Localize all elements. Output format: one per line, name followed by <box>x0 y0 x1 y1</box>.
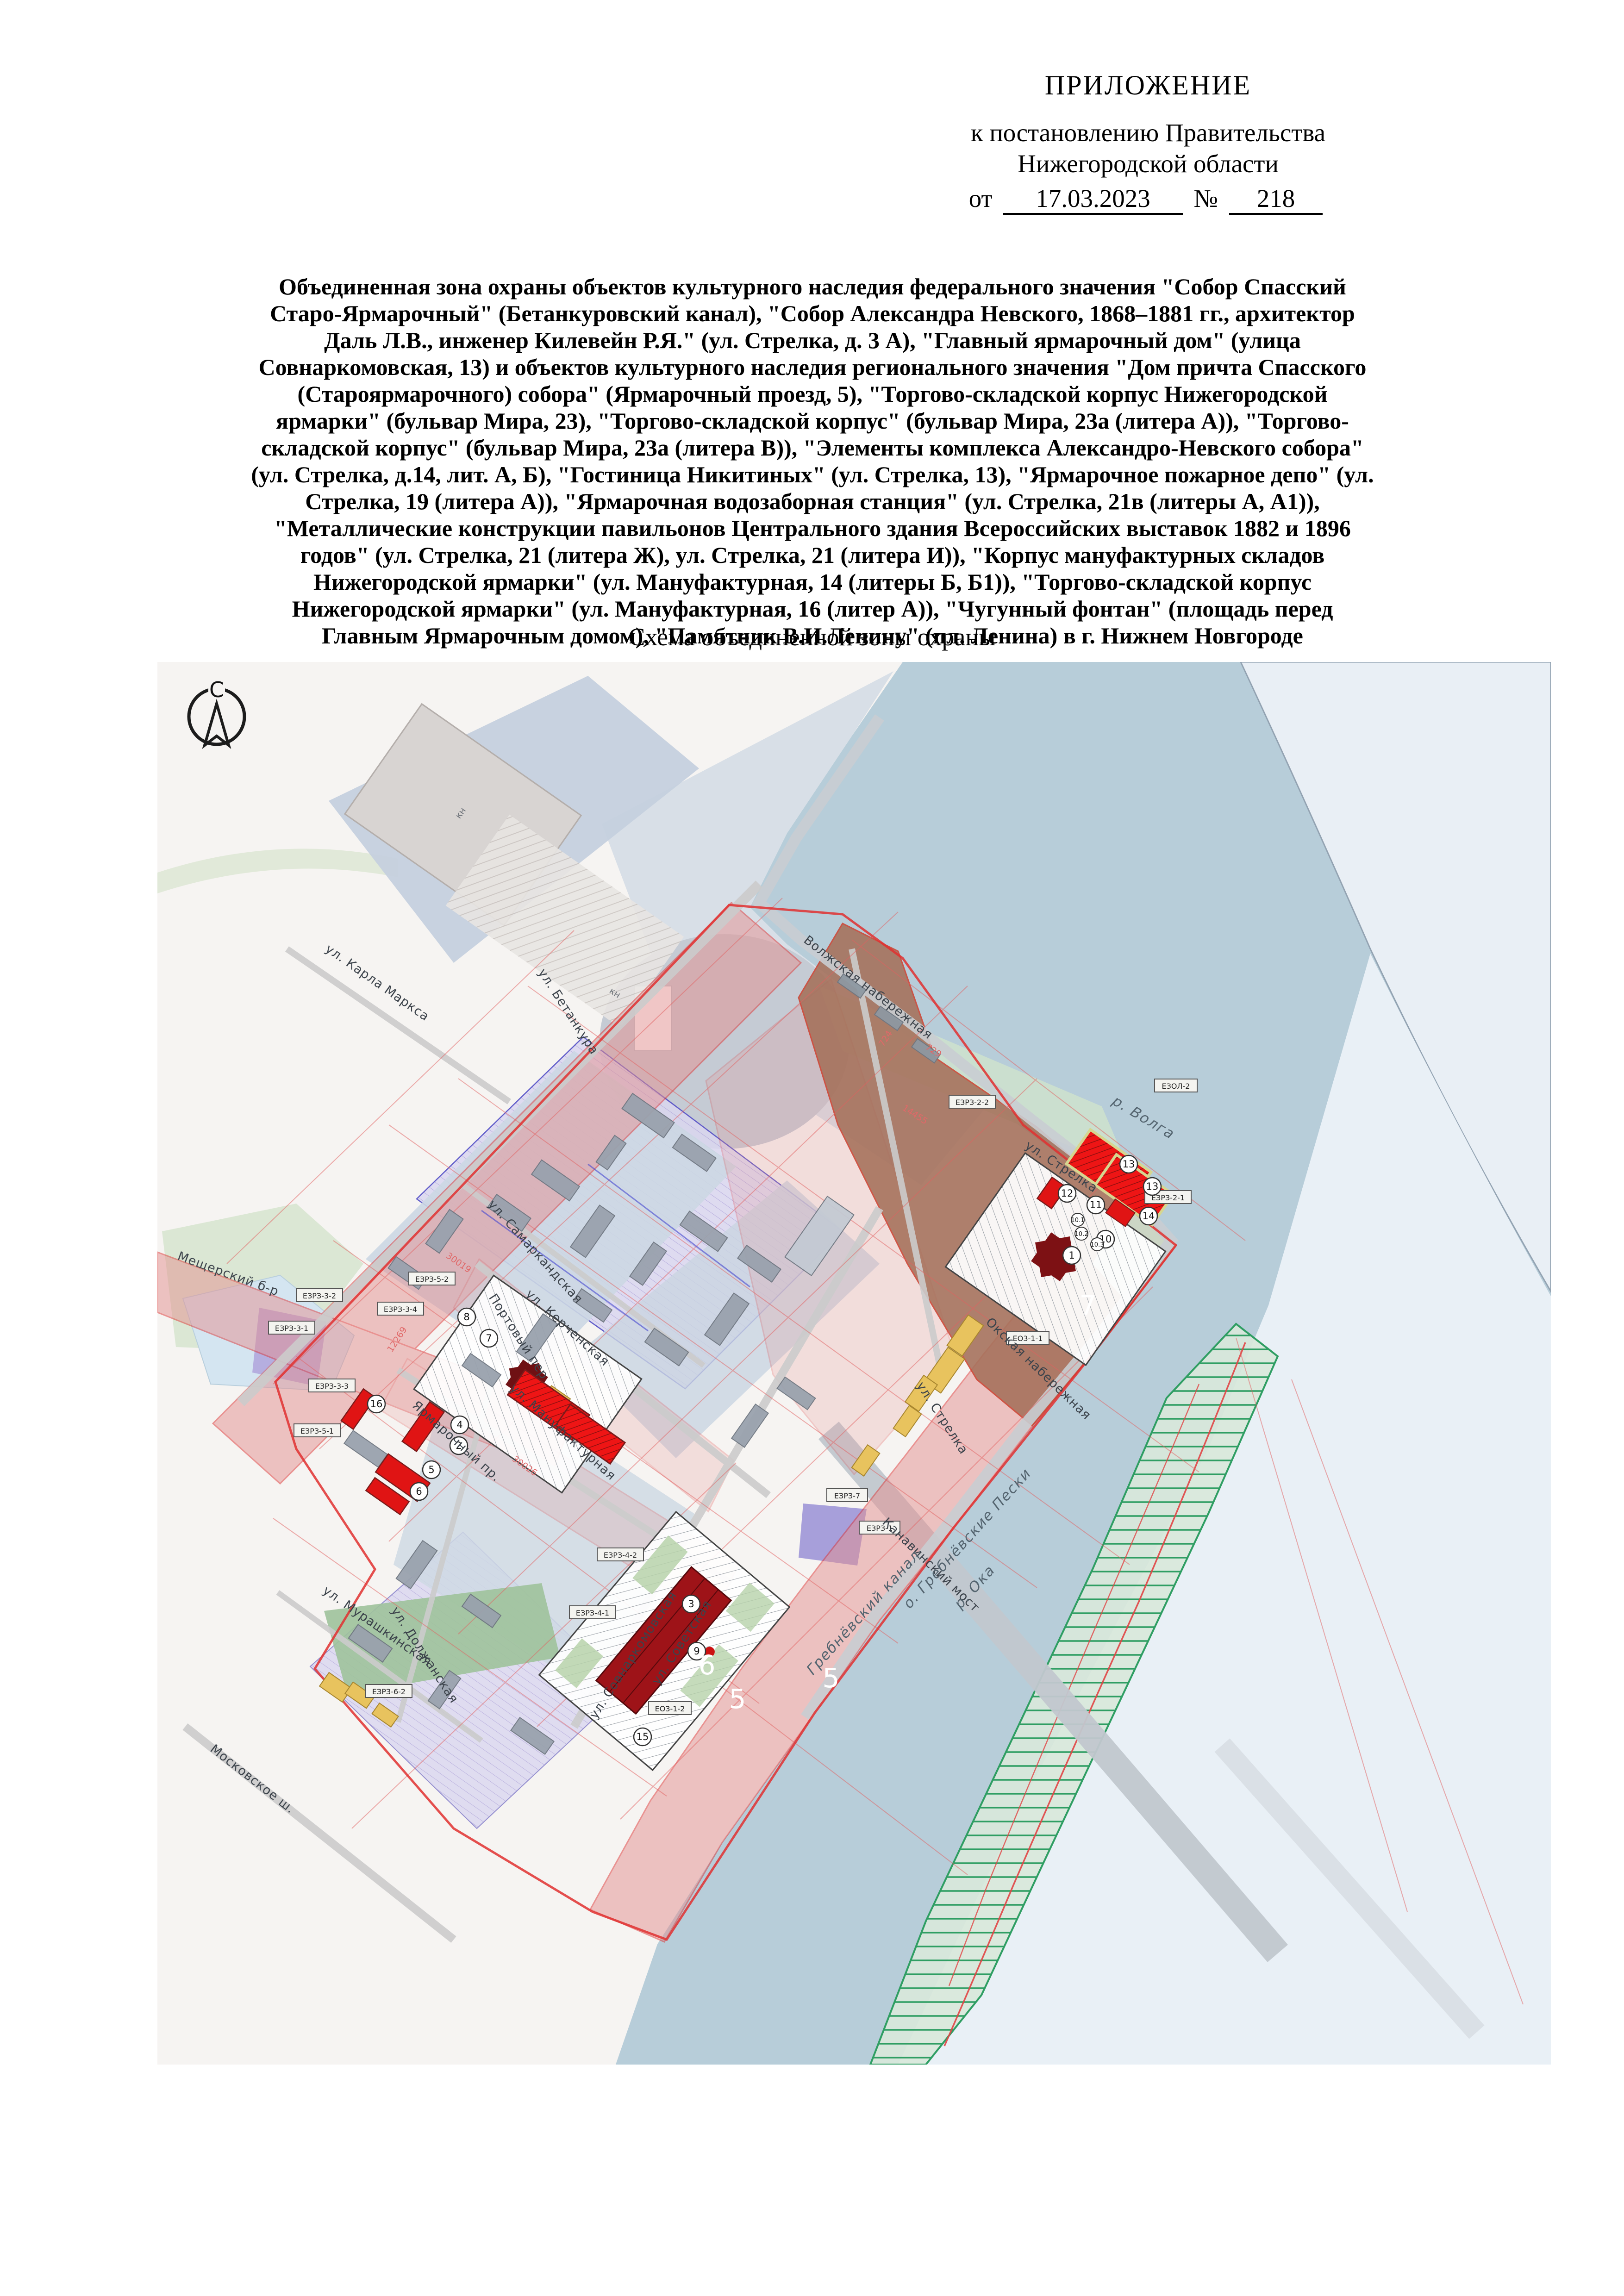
zone-code-ezrz7: ЕЗРЗ-7 <box>834 1491 860 1500</box>
marker-4: 4 <box>456 1419 462 1430</box>
map-subtitle: Схема объединенной зоны охраны <box>0 623 1624 651</box>
zone-code-ezrz42: ЕЗРЗ-4-2 <box>604 1551 637 1560</box>
marker-7: 7 <box>486 1333 492 1344</box>
zone-code-ezol2: ЕЗОЛ-2 <box>1162 1082 1190 1091</box>
marker-11: 11 <box>1090 1199 1102 1210</box>
header-block: ПРИЛОЖЕНИЕ к постановлению Правительства… <box>801 69 1495 215</box>
zone-code-ezrz62: ЕЗРЗ-6-2 <box>372 1687 406 1696</box>
date-prefix: от <box>969 184 993 212</box>
marker-10-3: 10.3 <box>1091 1242 1104 1248</box>
marker-13a: 13 <box>1123 1159 1135 1170</box>
marker-10-1: 10.1 <box>1071 1217 1085 1224</box>
marker-5: 5 <box>428 1464 434 1475</box>
compass-north-letter: С <box>209 677 224 702</box>
appendix-label: ПРИЛОЖЕНИЕ <box>801 69 1495 101</box>
marker-10-2: 10.2 <box>1075 1231 1088 1238</box>
zone-code-ezrz41: ЕЗРЗ-4-1 <box>576 1609 609 1617</box>
date-value: 17.03.2023 <box>1036 184 1150 212</box>
resolution-line-2: Нижегородской области <box>801 148 1495 179</box>
marker-13b: 13 <box>1146 1181 1159 1192</box>
resolution-line-1: к постановлению Правительства <box>801 117 1495 148</box>
marker-8: 8 <box>463 1311 469 1323</box>
zone-code-eo312: ЕО3-1-2 <box>655 1704 685 1713</box>
document-page: ПРИЛОЖЕНИЕ к постановлению Правительства… <box>0 0 1624 2296</box>
marker-15: 15 <box>637 1731 649 1742</box>
number-value: 218 <box>1257 184 1295 212</box>
date-underline: 17.03.2023 <box>1003 184 1183 215</box>
zone-number-7: 7 <box>1080 1290 1097 1321</box>
protection-zone-map: ЕЗОЛ-2 ЕЗРЗ-2-2 ЕЗРЗ-2-1 ЕО3-1-1 ЕО3-1-2… <box>157 662 1551 2065</box>
date-number-line: от 17.03.2023 № 218 <box>801 184 1495 215</box>
zone-number-5a: 5 <box>823 1662 840 1694</box>
marker-3: 3 <box>688 1598 694 1610</box>
zone-number-6: 6 <box>699 1649 716 1681</box>
number-underline: 218 <box>1229 184 1323 215</box>
zone-code-ezrz32: ЕЗРЗ-3-2 <box>303 1291 336 1300</box>
zone-code-ezrz51: ЕЗРЗ-5-1 <box>300 1427 334 1435</box>
zone-code-ezrz34: ЕЗРЗ-3-4 <box>384 1305 417 1314</box>
marker-6: 6 <box>416 1486 422 1497</box>
zone-number-5b: 5 <box>729 1683 746 1715</box>
zone-code-ezrz33: ЕЗРЗ-3-3 <box>315 1382 349 1391</box>
marker-12: 12 <box>1061 1188 1074 1199</box>
number-sign: № <box>1194 184 1218 212</box>
decree-title-paragraph: Объединенная зона охраны объектов культу… <box>250 273 1375 649</box>
zone-code-ezrz31: ЕЗРЗ-3-1 <box>275 1324 308 1333</box>
zone-code-ezrz22: ЕЗРЗ-2-2 <box>956 1098 989 1107</box>
marker-1: 1 <box>1068 1250 1074 1261</box>
marker-16: 16 <box>370 1398 383 1410</box>
zone-code-ezrz52: ЕЗРЗ-5-2 <box>415 1275 449 1284</box>
marker-14: 14 <box>1143 1210 1155 1222</box>
